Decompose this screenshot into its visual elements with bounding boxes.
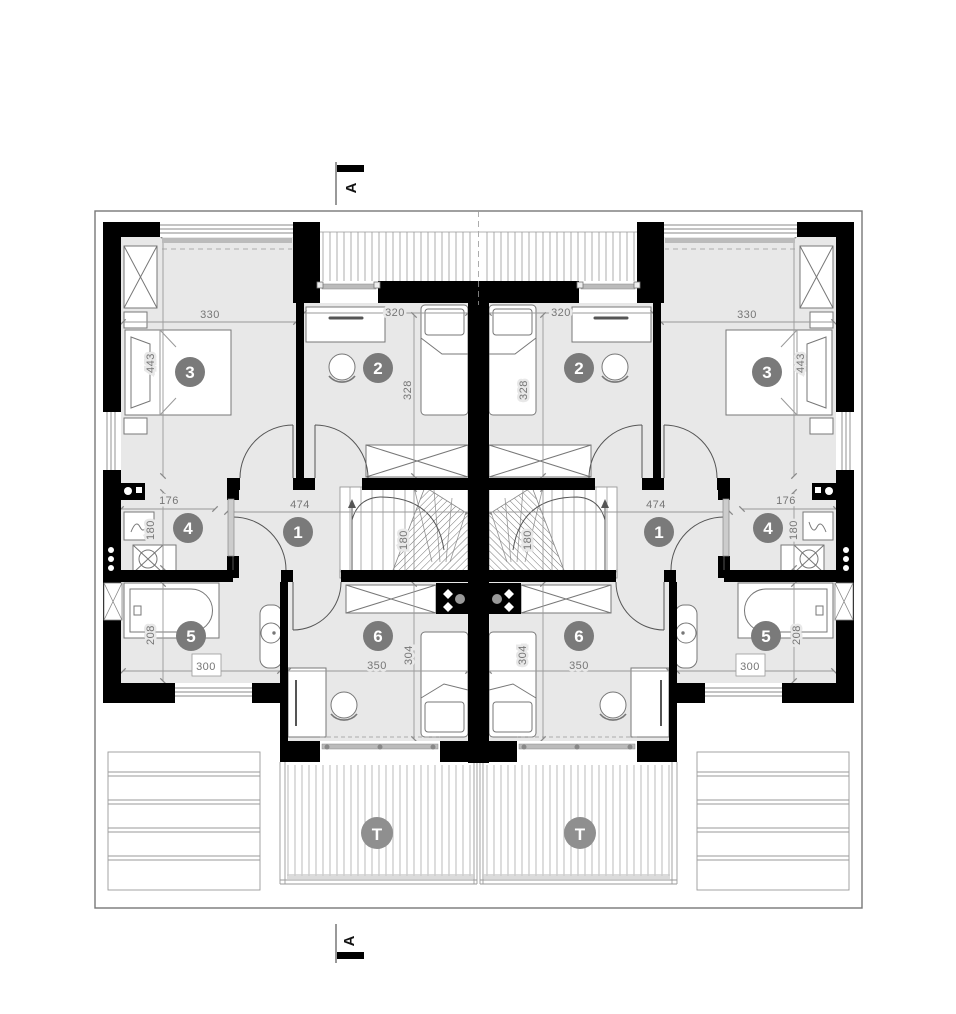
dim-330-right: 330	[737, 309, 757, 321]
dim-304-right: 304	[517, 645, 529, 665]
room-marker-3-right: 3	[762, 363, 771, 382]
dim-443-left: 443	[145, 353, 157, 373]
section-letter-bottom: A	[341, 935, 358, 946]
dim-443-right: 443	[795, 353, 807, 373]
dim-330-left: 330	[200, 309, 220, 321]
dim-474-left: 474	[290, 499, 310, 511]
room-marker-6-right: 6	[574, 627, 583, 646]
room-marker-5-left: 5	[186, 627, 195, 646]
dim-180-room4-left: 180	[145, 520, 157, 540]
dim-350-right: 350	[569, 660, 589, 672]
dim-180-room4-right: 180	[788, 520, 800, 540]
room-marker-3-left: 3	[185, 363, 194, 382]
dim-180-stairs-right: 180	[522, 530, 534, 550]
room-marker-2-right: 2	[574, 359, 583, 378]
dim-208-right: 208	[791, 625, 803, 645]
dim-320-right: 320	[551, 307, 571, 319]
dim-304-left: 304	[403, 645, 415, 665]
terrace-marker-right: T	[575, 825, 586, 844]
dim-208-left: 208	[145, 625, 157, 645]
room-marker-2-left: 2	[373, 359, 382, 378]
floor-plan-drawing: A A 1 1 2 2 3 3 4 4 5 5 6 6 T T 330 330 …	[0, 0, 956, 1014]
dim-320-left: 320	[385, 307, 405, 319]
room-marker-6-left: 6	[373, 627, 382, 646]
dim-474-right: 474	[646, 499, 666, 511]
dim-328-left: 328	[402, 380, 414, 400]
dim-176-left: 176	[159, 495, 179, 507]
dim-328-right: 328	[518, 380, 530, 400]
dim-300-left: 300	[196, 661, 216, 673]
section-letter-top: A	[343, 182, 360, 193]
room-marker-1-right: 1	[654, 523, 663, 542]
room-marker-5-right: 5	[761, 627, 770, 646]
floor-plan-page: A A 1 1 2 2 3 3 4 4 5 5 6 6 T T 330 330 …	[0, 0, 956, 1014]
room-marker-1-left: 1	[293, 523, 302, 542]
room-marker-4-left: 4	[183, 519, 193, 538]
terrace-marker-left: T	[372, 825, 383, 844]
room-marker-4-right: 4	[763, 519, 773, 538]
dim-350-left: 350	[367, 660, 387, 672]
dim-176-right: 176	[776, 495, 796, 507]
dim-180-stairs-left: 180	[398, 530, 410, 550]
dim-300-right: 300	[740, 661, 760, 673]
